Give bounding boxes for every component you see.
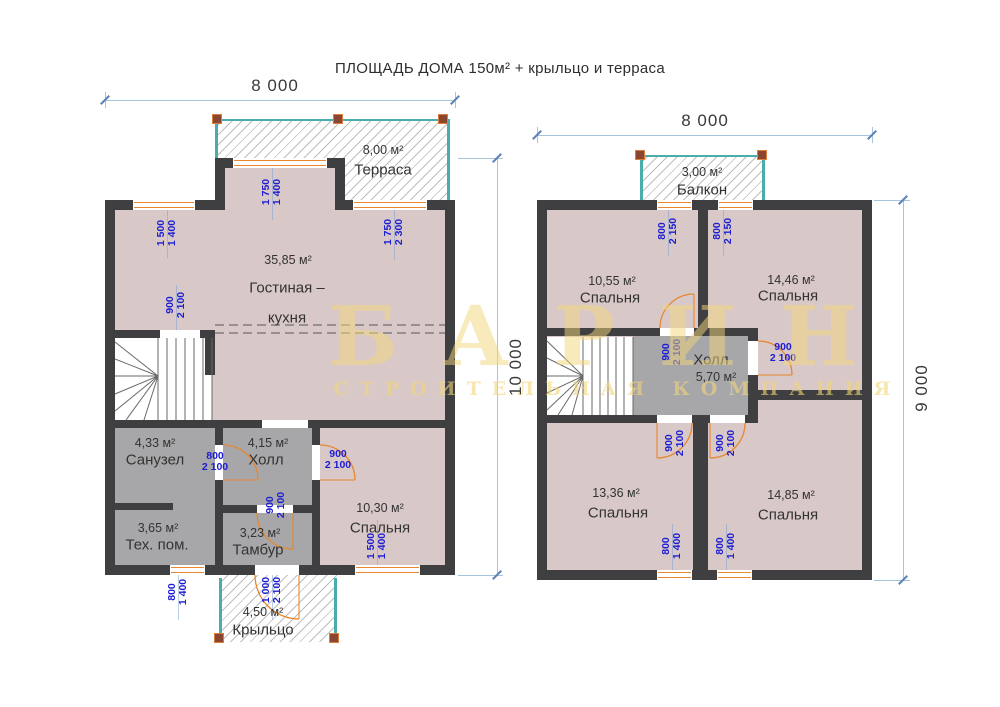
dim-bedroom-bl-door: 9002 100 — [664, 430, 686, 456]
bedroom-br-label: Спальня — [758, 507, 818, 524]
terrace-label: Терраса — [354, 162, 412, 179]
bathroom-area: 4,33 м² — [135, 436, 176, 450]
window — [233, 158, 327, 168]
dim-bedroom-tr-door: 9002 100 — [770, 342, 796, 364]
wall — [335, 158, 345, 210]
dim-bedroom-door: 9002 100 — [325, 449, 351, 471]
dim-balcony-door-right: 8002 150 — [712, 218, 734, 244]
dim-window-left: 1 5001 400 — [156, 220, 178, 246]
dim-balcony-door-left: 8002 150 — [657, 218, 679, 244]
stairs-area — [115, 338, 212, 420]
dim-stairs-opening: 9002 100 — [165, 292, 187, 318]
terrace-post — [212, 114, 222, 124]
balcony-area: 3,00 м² — [682, 165, 723, 179]
porch-rail — [334, 578, 337, 638]
terrace-door — [353, 200, 427, 210]
window — [657, 570, 692, 580]
page-title: ПЛОЩАДЬ ДОМА 150м² + крыльцо и терраса — [335, 60, 665, 77]
wall — [445, 200, 455, 575]
balcony-label: Балкон — [677, 182, 727, 199]
tech-area: 3,65 м² — [138, 521, 179, 535]
porch-post — [214, 633, 224, 643]
dim-window-right: 8001 400 — [715, 533, 737, 559]
wall — [537, 200, 872, 210]
wall — [105, 200, 115, 575]
dim-window-bay: 1 7501 400 — [261, 179, 283, 205]
hall-area: 4,15 м² — [248, 436, 289, 450]
tech-label: Тех. пом. — [125, 537, 188, 554]
floor2-width-dimension: 8 000 — [681, 111, 729, 131]
dimension-line — [105, 100, 455, 101]
porch-area: 4,50 м² — [243, 605, 284, 619]
dim-tambour-door: 9002 100 — [265, 492, 287, 518]
window — [170, 565, 205, 575]
bedroom-bl-label: Спальня — [588, 505, 648, 522]
living-label-2: кухня — [268, 310, 306, 327]
bedroom-tl-area: 10,55 м² — [588, 274, 636, 288]
dim-bedroom-br-door: 9002 100 — [715, 430, 737, 456]
porch-post — [329, 633, 339, 643]
bedroom-bl-area: 13,36 м² — [592, 486, 640, 500]
terrace-rail — [447, 119, 450, 200]
wall — [215, 158, 225, 210]
door-opening — [710, 415, 745, 423]
floor1-plan: 8 000 — [100, 80, 460, 680]
dimension-line — [537, 135, 872, 136]
door-opening — [657, 415, 692, 423]
hall-area: 5,70 м² — [696, 370, 737, 384]
wall — [293, 505, 312, 513]
wall — [537, 570, 872, 580]
wall — [758, 390, 862, 400]
porch-label: Крыльцо — [232, 622, 293, 639]
stairs-area — [547, 337, 633, 415]
wall — [693, 423, 708, 570]
hall-label: Холл — [693, 352, 728, 369]
balcony-door — [657, 200, 692, 210]
dim-tech-window: 8001 400 — [167, 579, 189, 605]
wall — [862, 200, 872, 580]
wall — [312, 480, 320, 565]
wall — [215, 480, 223, 565]
dimension-line — [497, 158, 498, 575]
wall — [308, 420, 445, 428]
porch-rail — [219, 578, 222, 638]
bedroom-tr-area: 14,46 м² — [767, 273, 815, 287]
passage-opening — [262, 420, 308, 428]
balcony-door — [718, 200, 753, 210]
wall — [537, 200, 547, 580]
dim-terrace-door: 1 7502 300 — [383, 219, 405, 245]
dim-bedroom-tl-door: 9002 100 — [661, 339, 683, 365]
dim-porch-door: 1 0002 100 — [261, 577, 283, 603]
bedroom-tl-label: Спальня — [580, 290, 640, 307]
floor-plan-sheet: ПЛОЩАДЬ ДОМА 150м² + крыльцо и терраса 8… — [0, 0, 1000, 707]
wall — [115, 420, 262, 428]
wall — [692, 415, 710, 423]
wall — [215, 428, 223, 445]
bedroom-label: Спальня — [350, 520, 410, 537]
dim-bedroom-window: 1 5001 400 — [366, 533, 388, 559]
living-label: Гостиная – — [249, 280, 324, 297]
wall — [698, 210, 708, 336]
living-area: 35,85 м² — [264, 253, 312, 267]
terrace-rail — [215, 119, 218, 160]
wall — [115, 330, 160, 338]
dim-window-left: 8001 400 — [661, 533, 683, 559]
floor2-plan: 8 000 — [530, 110, 950, 630]
door-opening — [660, 328, 694, 336]
tambour-area: 3,23 м² — [240, 526, 281, 540]
bedroom-br-area: 14,85 м² — [767, 488, 815, 502]
balcony-rail — [640, 155, 765, 157]
wall — [115, 503, 173, 510]
terrace-area: 8,00 м² — [363, 143, 404, 157]
wall — [547, 415, 657, 423]
door-opening — [312, 445, 320, 480]
window — [355, 565, 420, 575]
floor1-width-dimension: 8 000 — [251, 76, 299, 96]
wall — [312, 428, 320, 445]
door-opening — [748, 341, 758, 375]
tambour-label: Тамбур — [233, 542, 284, 559]
bedroom-tr-label: Спальня — [758, 288, 818, 305]
wall — [205, 338, 215, 375]
dim-bathroom-door: 8002 100 — [202, 451, 228, 473]
terrace-post — [438, 114, 448, 124]
floor1-height-dimension: 10 000 — [506, 338, 526, 396]
wall — [694, 328, 758, 336]
bedroom-area: 10,30 м² — [356, 501, 404, 515]
balcony-post — [635, 150, 645, 160]
wall — [547, 328, 660, 336]
wall — [745, 415, 758, 423]
stairs-opening — [160, 330, 200, 338]
wall — [200, 330, 215, 338]
balcony-rail — [762, 155, 765, 200]
hall-label: Холл — [248, 452, 283, 469]
wall — [223, 505, 257, 513]
porch-door-opening — [255, 565, 299, 575]
window — [717, 570, 752, 580]
balcony-post — [757, 150, 767, 160]
bathroom-label: Санузел — [126, 452, 184, 469]
balcony-rail — [640, 155, 643, 200]
terrace-post — [333, 114, 343, 124]
window — [133, 200, 195, 210]
